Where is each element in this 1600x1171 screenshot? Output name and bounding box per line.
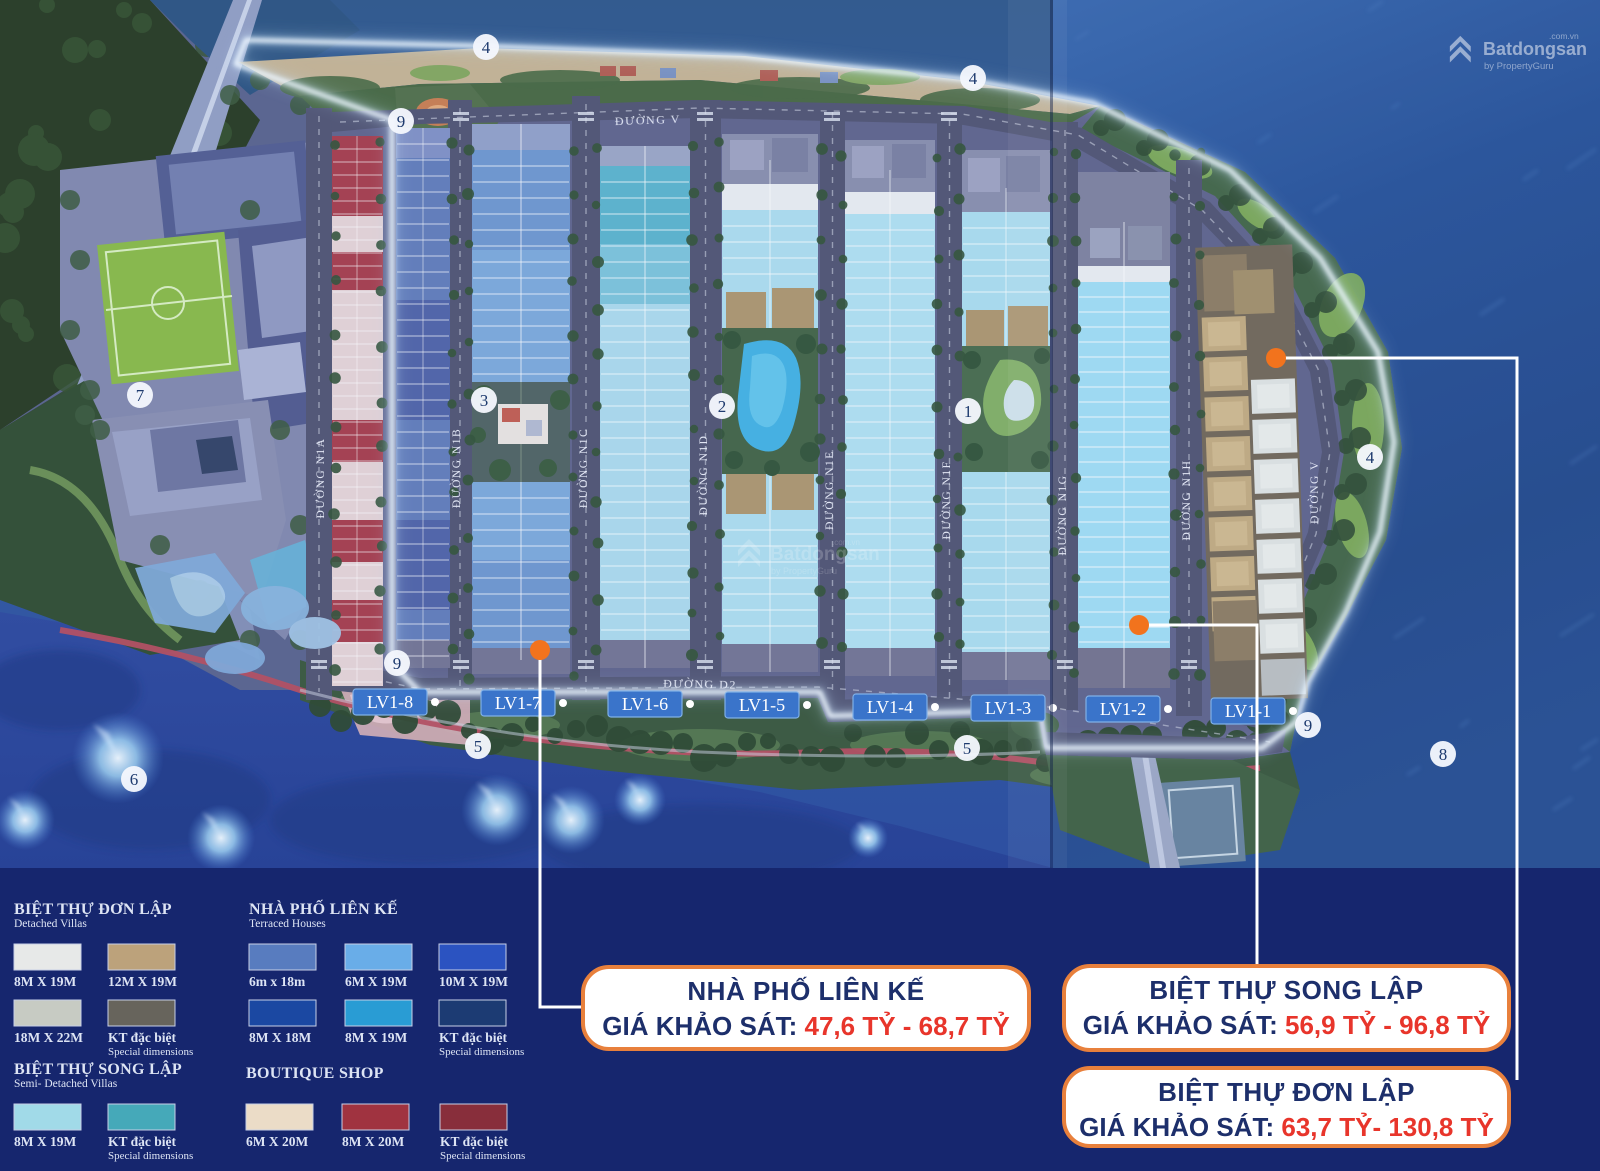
svg-text:by PropertyGuru: by PropertyGuru — [1484, 61, 1554, 72]
svg-text:by PropertyGuru: by PropertyGuru — [771, 566, 837, 576]
svg-text:5: 5 — [963, 739, 972, 758]
svg-text:KT đặc biệt: KT đặc biệt — [108, 1134, 177, 1149]
svg-text:ĐƯỜNG V: ĐƯỜNG V — [615, 112, 681, 128]
svg-text:9: 9 — [1304, 716, 1313, 735]
svg-text:4: 4 — [1366, 448, 1375, 467]
svg-text:8M X 19M: 8M X 19M — [345, 1030, 407, 1045]
svg-text:LV1-4: LV1-4 — [867, 697, 913, 717]
svg-text:Batdongsan: Batdongsan — [1483, 39, 1587, 59]
svg-text:6: 6 — [130, 770, 139, 789]
svg-text:18M X 22M: 18M X 22M — [14, 1030, 83, 1045]
svg-text:GIÁ KHẢO SÁT: 47,6 TỶ - 68,7 T: GIÁ KHẢO SÁT: 47,6 TỶ - 68,7 TỶ — [602, 1011, 1009, 1041]
svg-text:ĐƯỜNG D2: ĐƯỜNG D2 — [663, 676, 737, 691]
svg-text:LV1-7: LV1-7 — [495, 693, 541, 713]
svg-text:NHÀ PHỐ LIÊN KẾ: NHÀ PHỐ LIÊN KẾ — [249, 898, 398, 918]
svg-text:LV1-1: LV1-1 — [1225, 701, 1271, 721]
svg-text:ĐƯỜNG N1H: ĐƯỜNG N1H — [1179, 460, 1193, 541]
svg-text:NHÀ PHỐ LIÊN KẾ: NHÀ PHỐ LIÊN KẾ — [687, 976, 924, 1006]
svg-text:ĐƯỜNG N1B: ĐƯỜNG N1B — [449, 428, 463, 508]
svg-text:10M X 19M: 10M X 19M — [439, 974, 508, 989]
svg-text:LV1-6: LV1-6 — [622, 694, 668, 714]
svg-text:ĐƯỜNG N1A: ĐƯỜNG N1A — [313, 438, 327, 519]
svg-text:3: 3 — [480, 391, 489, 410]
svg-text:5: 5 — [474, 737, 483, 756]
svg-text:GIÁ KHẢO SÁT: 63,7 TỶ- 130,8 T: GIÁ KHẢO SÁT: 63,7 TỶ- 130,8 TỶ — [1079, 1112, 1494, 1142]
svg-text:LV1-8: LV1-8 — [367, 692, 413, 712]
svg-text:ĐƯỜNG N1E: ĐƯỜNG N1E — [822, 450, 836, 530]
svg-text:2: 2 — [718, 397, 727, 416]
svg-text:9: 9 — [397, 112, 406, 131]
svg-text:GIÁ KHẢO SÁT: 56,9 TỶ - 96,8 T: GIÁ KHẢO SÁT: 56,9 TỶ - 96,8 TỶ — [1083, 1010, 1490, 1040]
svg-text:KT đặc biệt: KT đặc biệt — [440, 1134, 509, 1149]
svg-text:.com.vn: .com.vn — [1549, 31, 1579, 41]
svg-text:ĐƯỜNG N1C: ĐƯỜNG N1C — [576, 428, 590, 508]
svg-text:LV1-2: LV1-2 — [1100, 699, 1146, 719]
svg-text:BIỆT THỰ SONG LẬP: BIỆT THỰ SONG LẬP — [14, 1060, 182, 1078]
svg-text:LV1-5: LV1-5 — [739, 695, 785, 715]
svg-text:LV1-3: LV1-3 — [985, 698, 1031, 718]
svg-text:Special dimensions: Special dimensions — [108, 1150, 193, 1162]
svg-text:Detached Villas: Detached Villas — [14, 918, 87, 930]
svg-text:ĐƯỜNG N1F: ĐƯỜNG N1F — [939, 461, 953, 540]
svg-text:Special dimensions: Special dimensions — [440, 1150, 525, 1162]
svg-text:BOUTIQUE SHOP: BOUTIQUE SHOP — [246, 1065, 384, 1082]
svg-text:BIỆT THỰ ĐƠN LẬP: BIỆT THỰ ĐƠN LẬP — [14, 900, 172, 918]
svg-text:Special dimensions: Special dimensions — [108, 1046, 193, 1058]
svg-text:BIỆT THỰ ĐƠN LẬP: BIỆT THỰ ĐƠN LẬP — [1158, 1077, 1415, 1107]
svg-text:8M X 20M: 8M X 20M — [342, 1134, 404, 1149]
svg-text:8M X 19M: 8M X 19M — [14, 974, 76, 989]
svg-text:.com.vn: .com.vn — [832, 538, 860, 547]
svg-text:9: 9 — [393, 654, 402, 673]
svg-text:BIỆT THỰ SONG LẬP: BIỆT THỰ SONG LẬP — [1149, 975, 1423, 1005]
svg-text:Terraced Houses: Terraced Houses — [249, 918, 326, 930]
svg-text:1: 1 — [964, 402, 973, 421]
svg-text:Special dimensions: Special dimensions — [439, 1046, 524, 1058]
svg-text:12M X 19M: 12M X 19M — [108, 974, 177, 989]
svg-text:ĐƯỜNG N1D: ĐƯỜNG N1D — [696, 435, 710, 516]
svg-text:8M X 18M: 8M X 18M — [249, 1030, 311, 1045]
svg-text:Semi- Detached Villas: Semi- Detached Villas — [14, 1078, 118, 1090]
svg-text:7: 7 — [136, 386, 145, 405]
svg-text:6M X 20M: 6M X 20M — [246, 1134, 308, 1149]
svg-text:6M X 19M: 6M X 19M — [345, 974, 407, 989]
svg-text:6m x 18m: 6m x 18m — [249, 974, 306, 989]
svg-text:KT đặc biệt: KT đặc biệt — [439, 1030, 508, 1045]
svg-text:ĐƯỜNG V: ĐƯỜNG V — [1307, 460, 1321, 524]
svg-text:KT đặc biệt: KT đặc biệt — [108, 1030, 177, 1045]
svg-text:4: 4 — [969, 69, 978, 88]
svg-text:8: 8 — [1439, 745, 1448, 764]
svg-text:8M X 19M: 8M X 19M — [14, 1134, 76, 1149]
svg-text:Batdongsan: Batdongsan — [770, 544, 880, 565]
svg-text:4: 4 — [482, 38, 491, 57]
